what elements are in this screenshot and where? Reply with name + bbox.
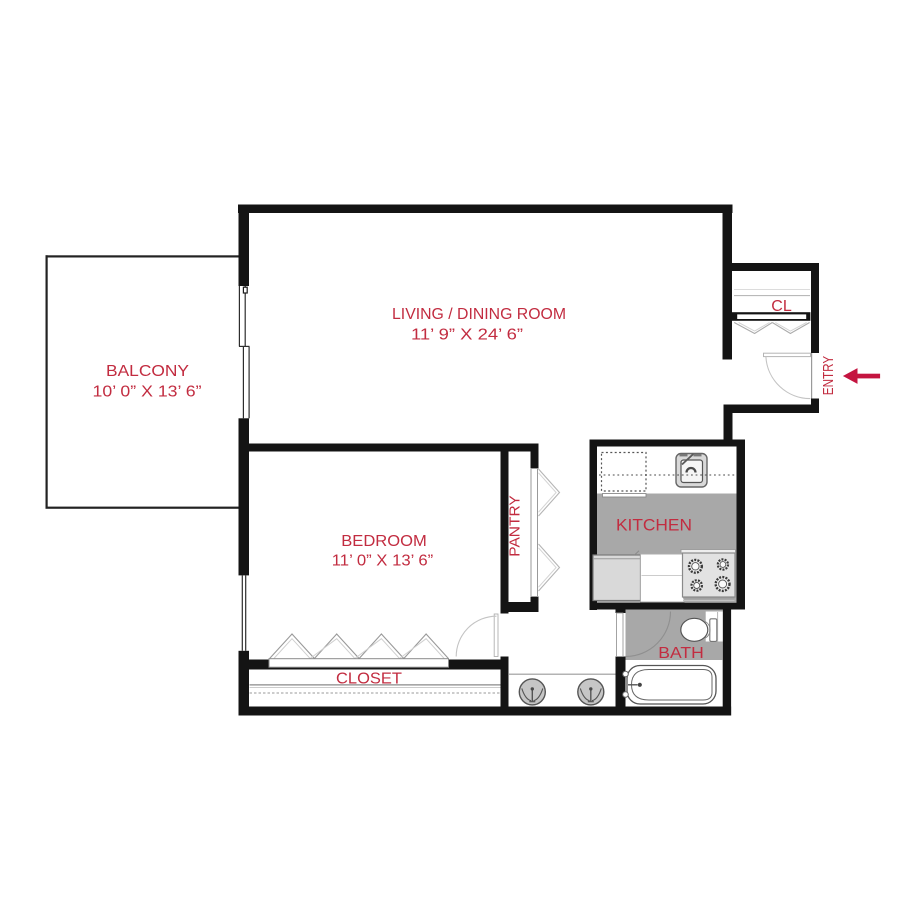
svg-text:BALCONY: BALCONY [106, 363, 189, 380]
svg-text:11’ 0” X 13’ 6”: 11’ 0” X 13’ 6” [332, 553, 434, 570]
svg-text:PANTRY: PANTRY [507, 495, 524, 557]
svg-text:10’ 0” X 13’ 6”: 10’ 0” X 13’ 6” [93, 384, 202, 401]
svg-text:KITCHEN: KITCHEN [616, 517, 692, 535]
svg-text:ENTRY: ENTRY [820, 356, 837, 396]
svg-text:BATH: BATH [658, 645, 704, 662]
svg-text:11’ 9” X 24’ 6”: 11’ 9” X 24’ 6” [411, 327, 523, 344]
svg-text:LIVING / DINING ROOM: LIVING / DINING ROOM [392, 306, 566, 323]
svg-text:BEDROOM: BEDROOM [341, 533, 427, 550]
